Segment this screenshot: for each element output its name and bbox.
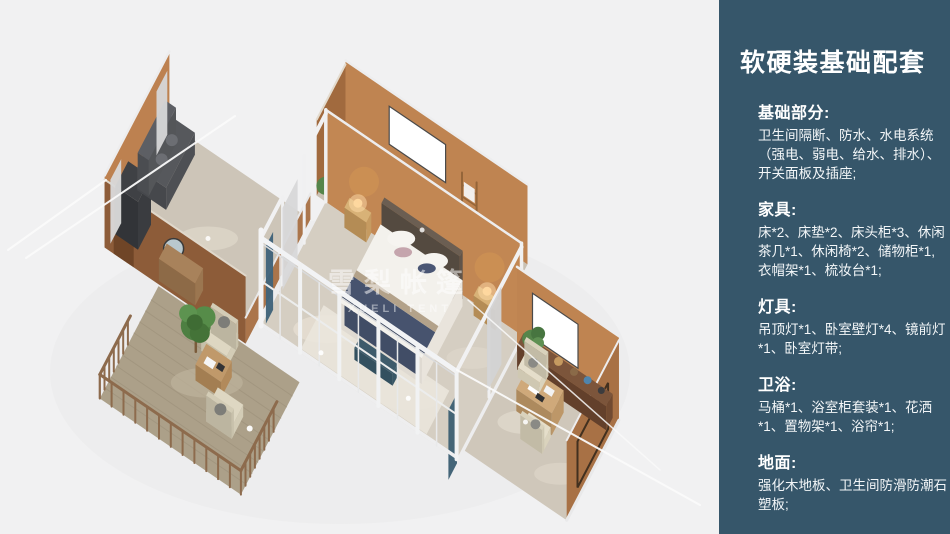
section-lighting: 灯具: 吊顶灯*1、卧室壁灯*4、镜前灯*1、卧室灯带;: [758, 298, 948, 358]
section-heading: 家具:: [758, 201, 948, 221]
section-body: 卫生间隔断、防水、水电系统（强电、弱电、给水、排水）、开关面板及插座;: [758, 126, 948, 183]
section-basics: 基础部分: 卫生间隔断、防水、水电系统（强电、弱电、给水、排水）、开关面板及插座…: [758, 104, 948, 183]
section-heading: 灯具:: [758, 298, 948, 318]
section-heading: 基础部分:: [758, 104, 948, 124]
panel-title: 软硬装基础配套: [740, 48, 942, 78]
section-body: 强化木地板、卫生间防滑防潮石塑板;: [758, 476, 948, 514]
panel-sections: 基础部分: 卫生间隔断、防水、水电系统（强电、弱电、给水、排水）、开关面板及插座…: [758, 104, 948, 514]
slide: 雪梨帐篷 XUELI TENT 软硬装基础配套 基础部分: 卫生间隔断、防水、水…: [0, 0, 950, 534]
watermark-en: XUELI TENT: [348, 303, 452, 315]
info-panel: 软硬装基础配套 基础部分: 卫生间隔断、防水、水电系统（强电、弱电、给水、排水）…: [719, 0, 950, 534]
section-furniture: 家具: 床*2、床垫*2、床头柜*3、休闲茶几*1、休闲椅*2、储物柜*1, 衣…: [758, 201, 948, 280]
section-heading: 地面:: [758, 454, 948, 474]
section-heading: 卫浴:: [758, 376, 948, 396]
section-body: 吊顶灯*1、卧室壁灯*4、镜前灯*1、卧室灯带;: [758, 320, 948, 358]
section-body: 床*2、床垫*2、床头柜*3、休闲茶几*1、休闲椅*2、储物柜*1, 衣帽架*1…: [758, 223, 948, 280]
watermark-cn: 雪梨帐篷: [328, 267, 472, 298]
floorplan-render: 雪梨帐篷 XUELI TENT: [0, 0, 719, 534]
watermark: 雪梨帐篷 XUELI TENT: [328, 267, 472, 315]
section-body: 马桶*1、浴室柜套装*1、花洒*1、置物架*1、浴帘*1;: [758, 398, 948, 436]
section-flooring: 地面: 强化木地板、卫生间防滑防潮石塑板;: [758, 454, 948, 514]
section-bathroom: 卫浴: 马桶*1、浴室柜套装*1、花洒*1、置物架*1、浴帘*1;: [758, 376, 948, 436]
